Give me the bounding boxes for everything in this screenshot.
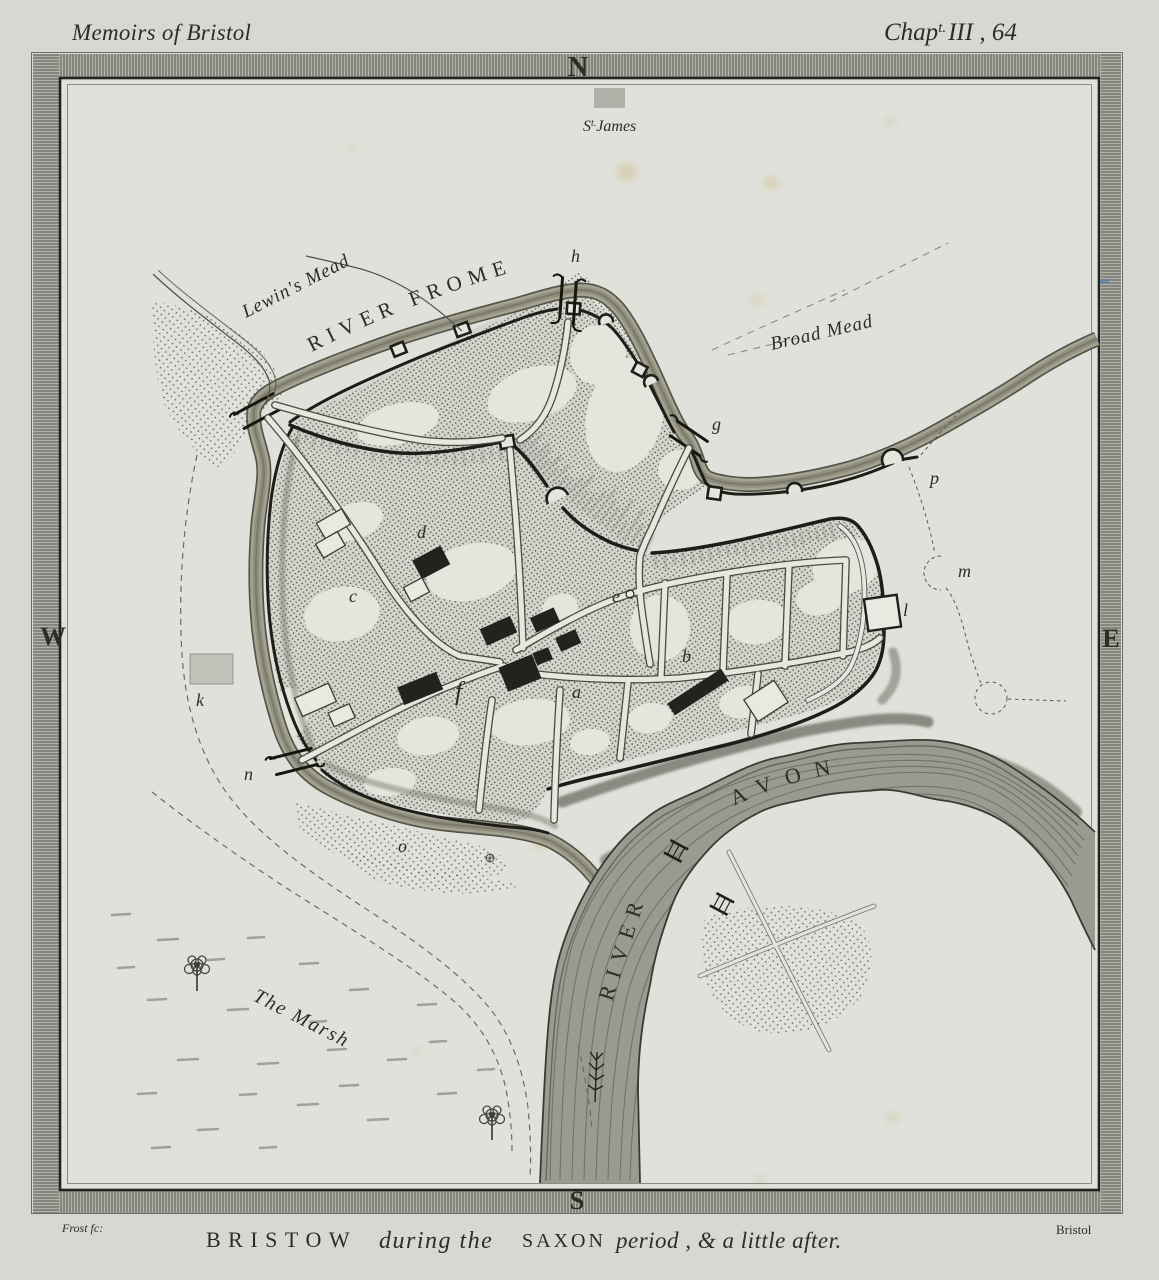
svg-text:e: e: [612, 586, 620, 606]
svg-text:h: h: [571, 246, 580, 266]
svg-text:Bristol: Bristol: [1056, 1222, 1092, 1237]
svg-text:SAXON: SAXON: [522, 1230, 606, 1252]
svg-text:S: S: [570, 1186, 584, 1215]
svg-text:g: g: [712, 414, 721, 434]
svg-text:d: d: [417, 522, 427, 542]
svg-text:E: E: [1102, 624, 1119, 653]
svg-text:N: N: [568, 52, 588, 83]
svg-text:BRISTOW: BRISTOW: [206, 1227, 357, 1252]
svg-text:b: b: [682, 646, 691, 666]
svg-text:m: m: [958, 561, 971, 581]
svg-text:during the: during the: [379, 1228, 493, 1254]
svg-text:l: l: [903, 600, 908, 620]
svg-text:o: o: [398, 836, 407, 856]
svg-text:W: W: [40, 622, 66, 651]
svg-text:k: k: [196, 690, 205, 710]
svg-text:c: c: [349, 586, 357, 606]
svg-text:Chapt.III , 64: Chapt.III , 64: [884, 19, 1017, 46]
svg-text:Frost fc:: Frost fc:: [61, 1221, 103, 1235]
svg-text:n: n: [244, 764, 253, 784]
svg-text:Memoirs of Bristol: Memoirs of Bristol: [71, 20, 251, 45]
svg-text:a: a: [572, 682, 581, 702]
svg-text:p: p: [928, 468, 939, 488]
svg-text:St.James: St.James: [583, 118, 636, 135]
svg-text:period , & a little after.: period , & a little after.: [614, 1228, 842, 1253]
